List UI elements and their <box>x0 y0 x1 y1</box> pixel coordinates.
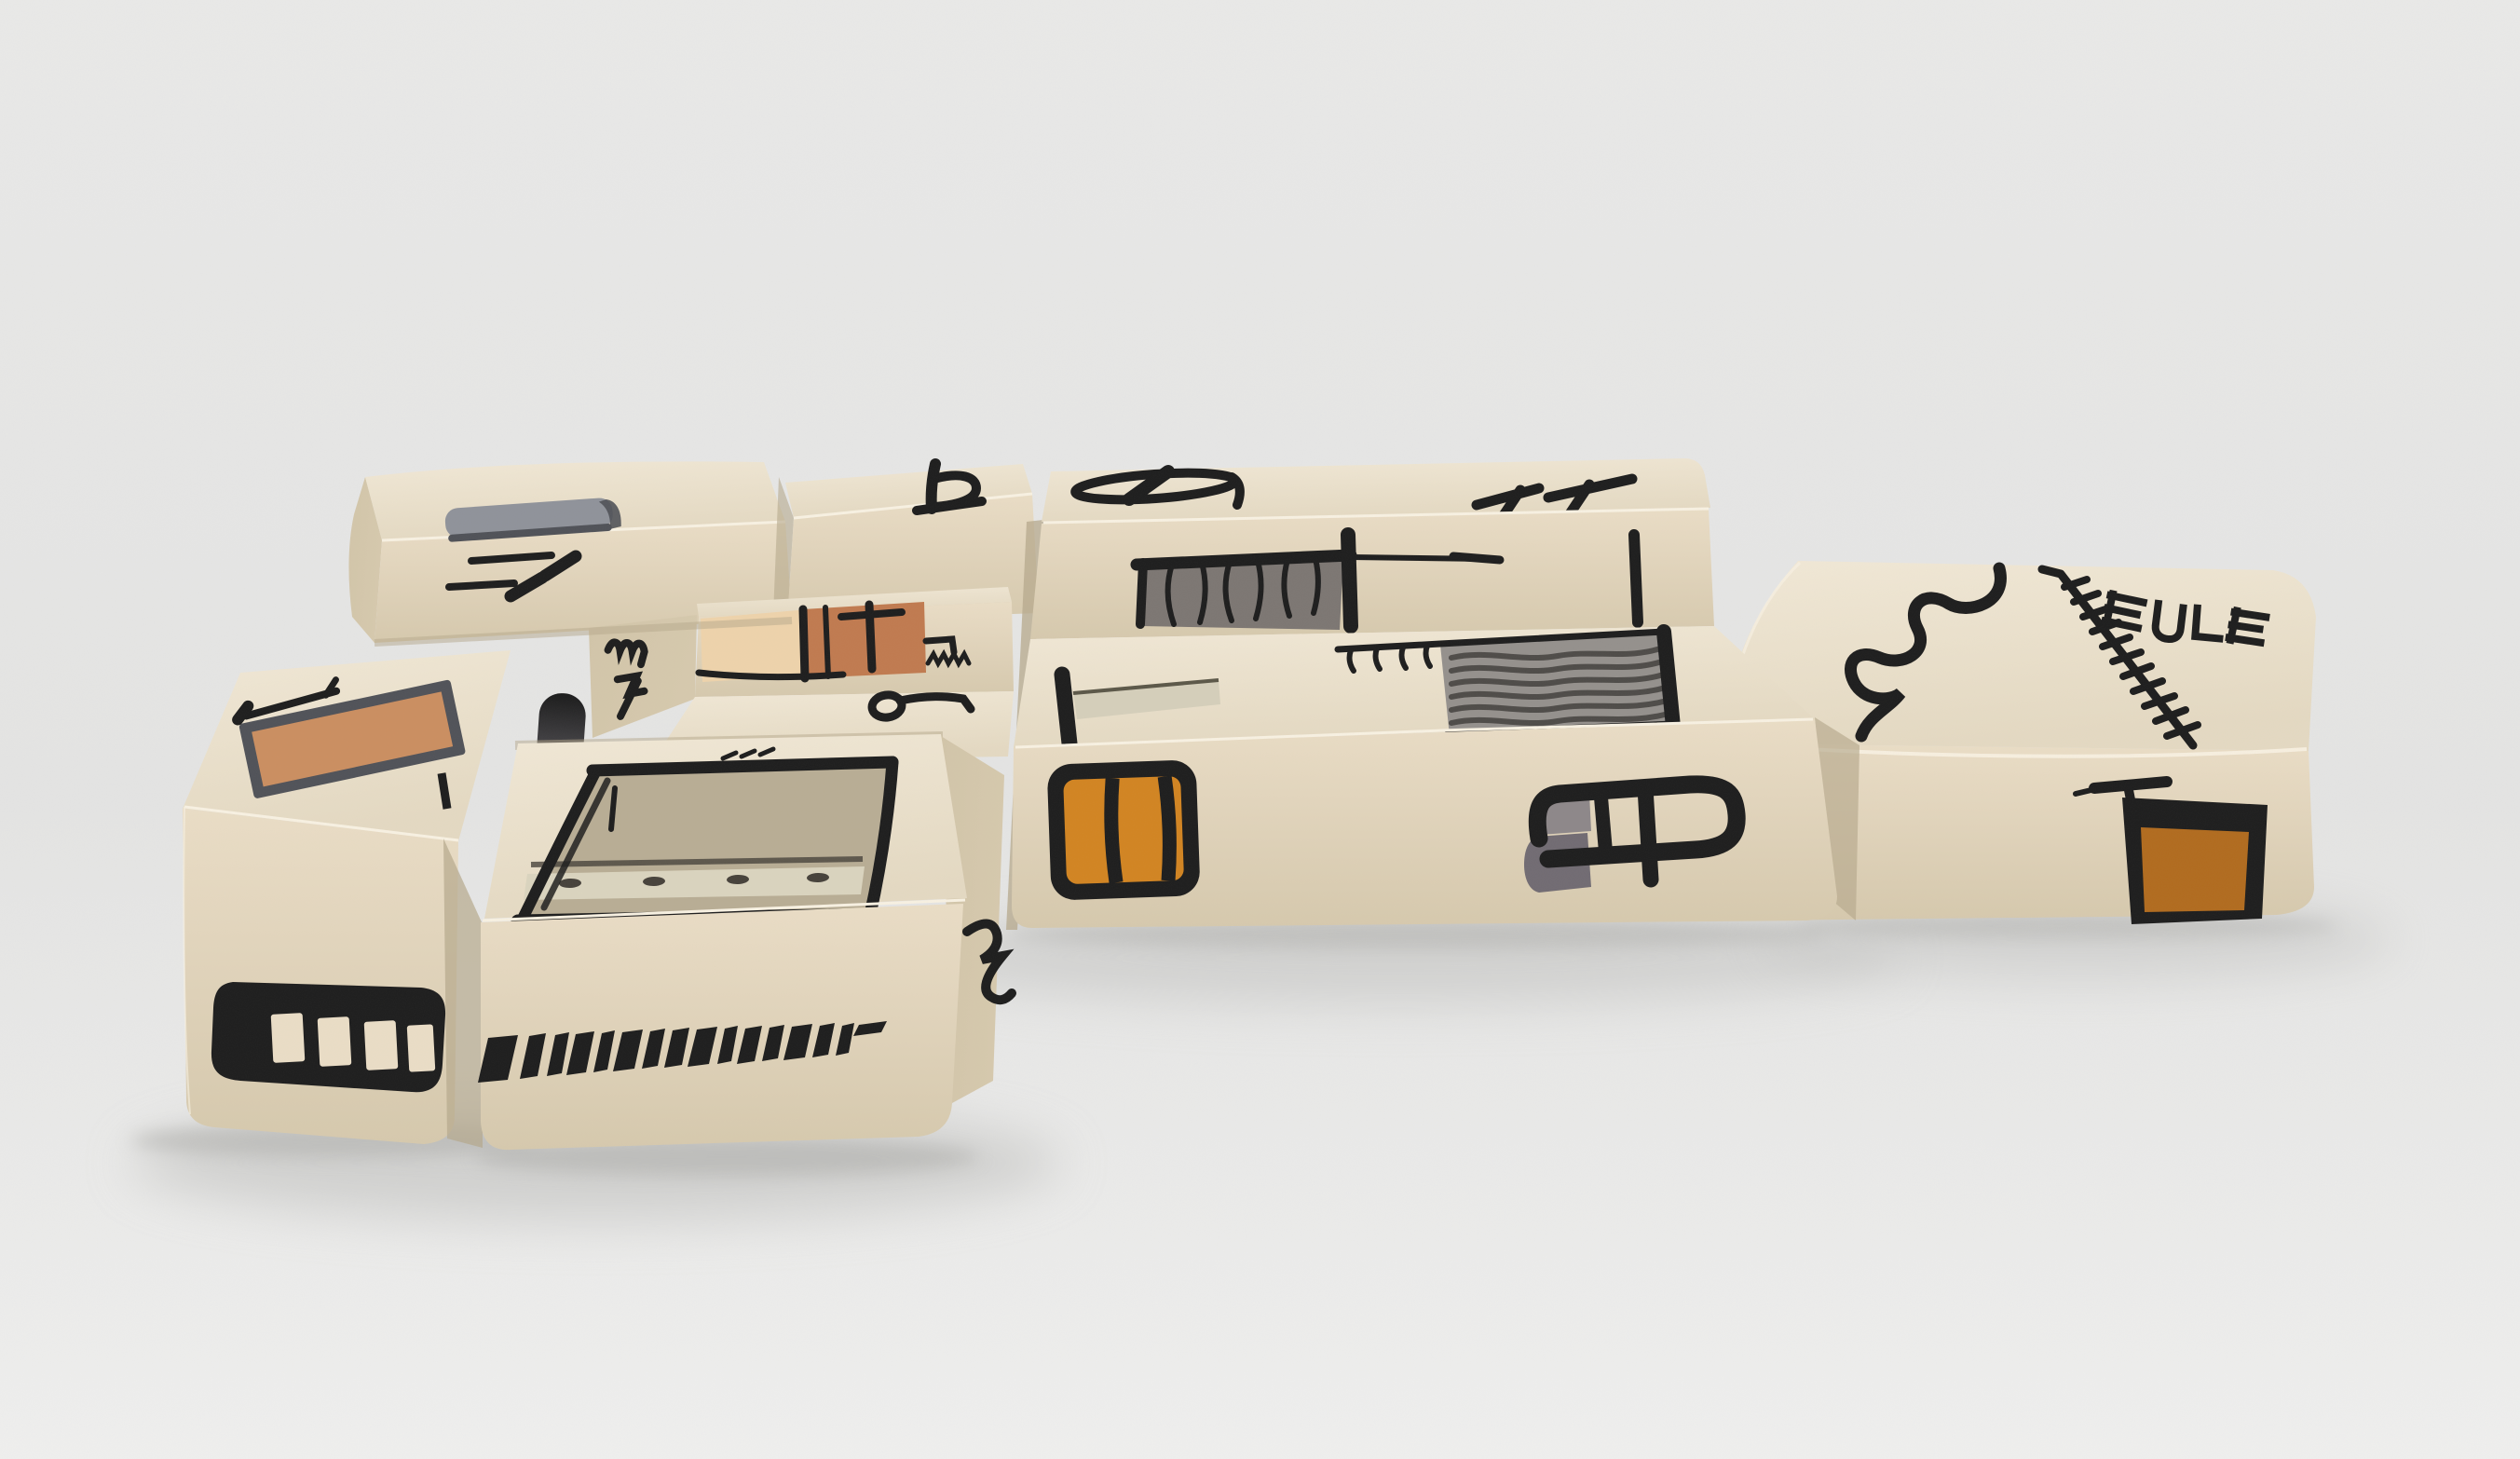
product-photo-stage <box>0 0 2520 1459</box>
modular-sofa-render <box>0 0 2520 1459</box>
grain-overlay <box>0 0 2520 1459</box>
